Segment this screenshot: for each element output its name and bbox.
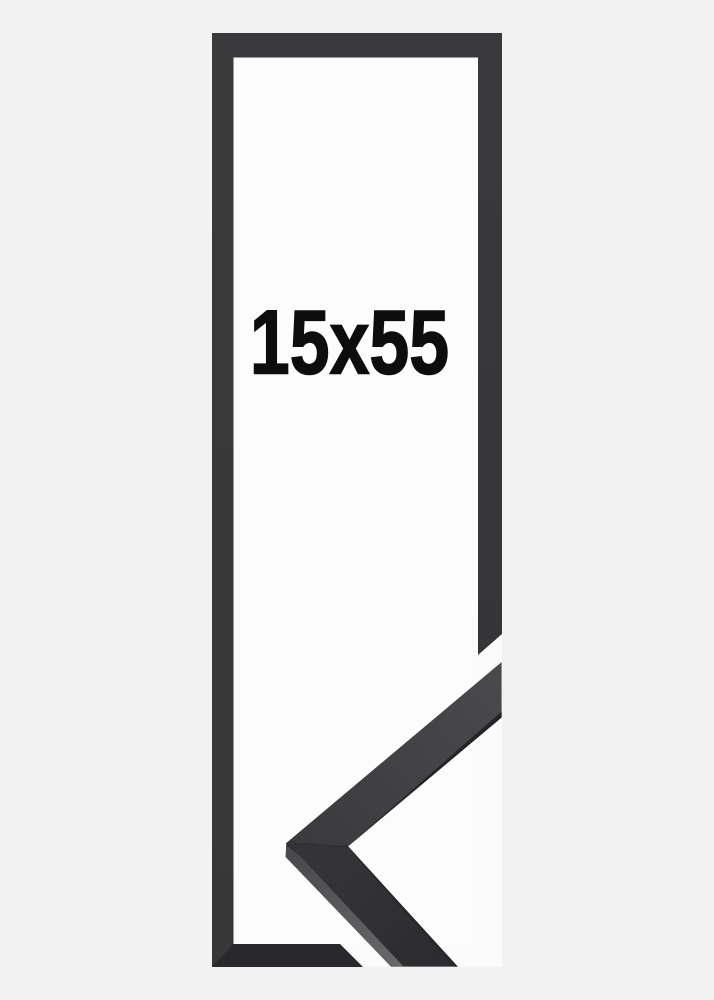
- svg-text:15x55: 15x55: [250, 292, 449, 393]
